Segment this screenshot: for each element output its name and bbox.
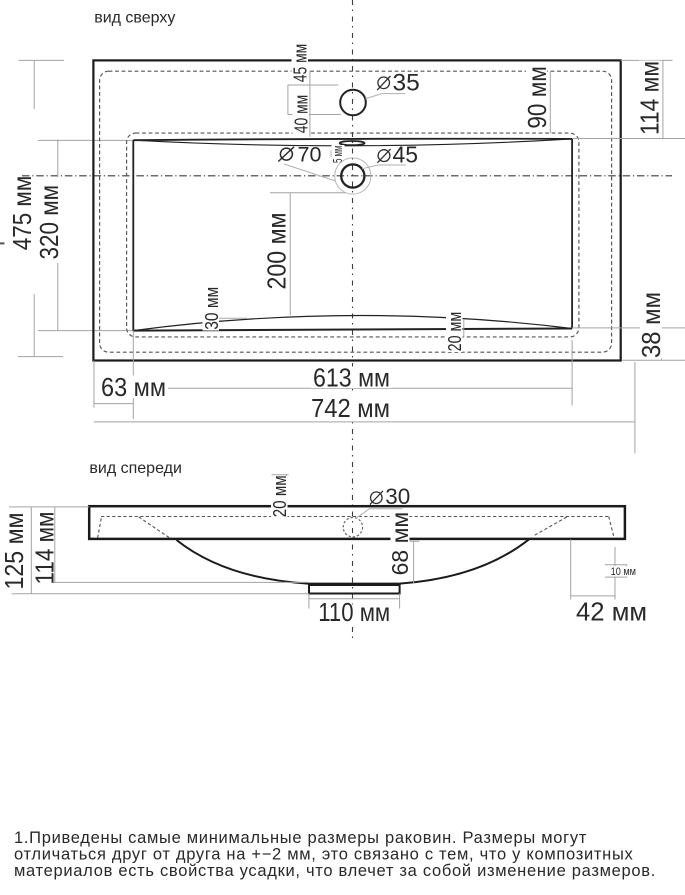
svg-text:20 мм: 20 мм xyxy=(269,475,290,517)
svg-text:материалов есть свойства усадк: материалов есть свойства усадки, что вле… xyxy=(14,862,656,880)
svg-text:90 мм: 90 мм xyxy=(522,66,552,128)
svg-text:45: 45 xyxy=(393,141,419,167)
svg-text:20 мм: 20 мм xyxy=(444,312,465,352)
svg-text:200 мм: 200 мм xyxy=(262,213,292,290)
svg-text:114 мм: 114 мм xyxy=(30,512,60,585)
svg-text:45 мм: 45 мм xyxy=(289,44,310,83)
svg-text:68 мм: 68 мм xyxy=(387,512,413,576)
svg-text:475 мм: 475 мм xyxy=(7,176,37,251)
svg-text:отличаться друг от друга на +−: отличаться друг от друга на +−2 мм, это … xyxy=(14,846,634,864)
svg-text:1.Приведены самые минимальные: 1.Приведены самые минимальные размеры ра… xyxy=(14,829,587,847)
svg-text:35: 35 xyxy=(393,69,420,96)
svg-text:110 мм: 110 мм xyxy=(318,597,390,627)
svg-text:42 мм: 42 мм xyxy=(576,597,647,627)
svg-text:вид спереди: вид спереди xyxy=(89,460,181,477)
svg-text:613 мм: 613 мм xyxy=(313,363,390,393)
svg-text:30: 30 xyxy=(385,484,410,509)
svg-text:40 мм: 40 мм xyxy=(291,95,312,134)
svg-text:38 мм: 38 мм xyxy=(636,292,666,358)
svg-text:10 мм: 10 мм xyxy=(611,566,636,578)
svg-text:70: 70 xyxy=(298,143,322,167)
svg-text:вид сверху: вид сверху xyxy=(94,10,175,27)
svg-text:30 мм: 30 мм xyxy=(201,287,222,330)
svg-text:114 мм: 114 мм xyxy=(635,61,665,135)
svg-text:125 мм: 125 мм xyxy=(0,513,29,590)
svg-text:742 мм: 742 мм xyxy=(311,393,390,423)
svg-text:63 мм: 63 мм xyxy=(101,372,166,402)
svg-text:320 мм: 320 мм xyxy=(34,185,64,260)
